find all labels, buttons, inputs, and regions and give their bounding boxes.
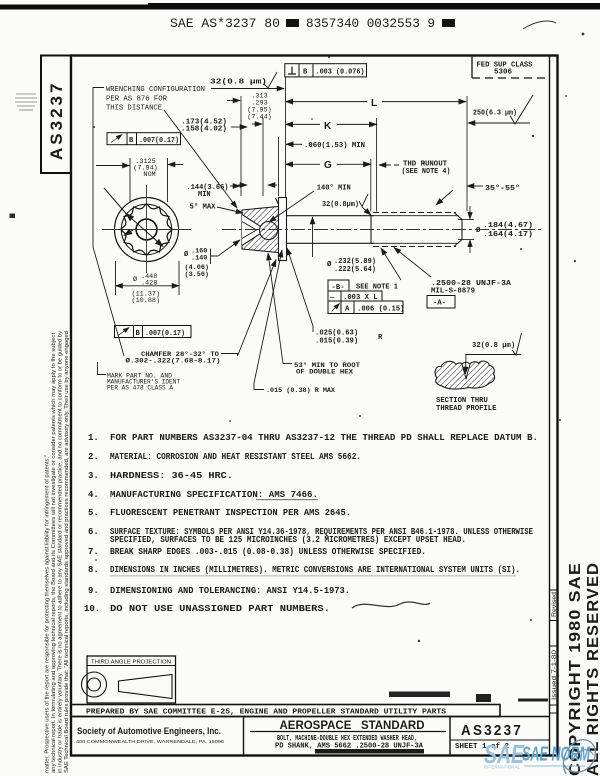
- svg-text:PER AS 478 CLASS A: PER AS 478 CLASS A: [107, 385, 173, 392]
- svg-text:.428: .428: [141, 280, 157, 288]
- svg-text:OF DOUBLE HEX: OF DOUBLE HEX: [296, 369, 354, 377]
- svg-text:SAE AS*3237 80: SAE AS*3237 80: [170, 16, 280, 31]
- svg-text:8.: 8.: [88, 565, 99, 575]
- svg-text:.060(1.53) MIN: .060(1.53) MIN: [304, 142, 365, 150]
- svg-text:(3.56): (3.56): [185, 271, 209, 279]
- svg-text:SEE NOTE 1: SEE NOTE 1: [356, 284, 399, 292]
- svg-text:.232(5.89): .232(5.89): [334, 258, 376, 266]
- svg-text:.015(0.39): .015(0.39): [315, 338, 358, 346]
- svg-text:.007(0.17): .007(0.17): [145, 330, 185, 338]
- svg-text:Ø: Ø: [476, 226, 481, 235]
- svg-text:BREAK SHARP EDGES .003-.015 (0: BREAK SHARP EDGES .003-.015 (0.08-0.38) …: [110, 547, 426, 557]
- svg-text:(SEE NOTE 4): (SEE NOTE 4): [402, 168, 451, 176]
- svg-text:.015 (0.38) R MAX: .015 (0.38) R MAX: [266, 387, 336, 395]
- svg-text:Ø: Ø: [327, 260, 332, 269]
- svg-text:2.: 2.: [88, 452, 99, 462]
- svg-text:HARDNESS: 36-45 HRC.: HARDNESS: 36-45 HRC.: [110, 471, 233, 481]
- svg-text:SPECIFIED, SURFACES TO BE 125: SPECIFIED, SURFACES TO BE 125 MICROINCHE…: [110, 535, 466, 545]
- svg-text:—: —: [329, 294, 335, 302]
- svg-text:(10.88): (10.88): [132, 297, 161, 305]
- svg-text:(7.44): (7.44): [247, 114, 271, 122]
- svg-text:Ø.302-.322(7.68-8.17): Ø.302-.322(7.68-8.17): [126, 357, 221, 366]
- svg-text:32(0.8 µm): 32(0.8 µm): [472, 342, 515, 350]
- svg-text:5.: 5.: [88, 508, 99, 518]
- svg-text:.003 (0.076): .003 (0.076): [316, 69, 365, 77]
- svg-text:9.: 9.: [88, 586, 99, 596]
- svg-text:.158(4.02): .158(4.02): [181, 126, 227, 134]
- svg-text:-A-: -A-: [433, 300, 446, 308]
- svg-text:SAE Technical Board rules prov: SAE Technical Board rules provide that: …: [64, 331, 70, 773]
- svg-text:THIS DISTANCE: THIS DISTANCE: [106, 105, 162, 113]
- svg-text:B: B: [136, 330, 141, 338]
- svg-text:MATERIAL: CORROSION AND HEAT: MATERIAL: CORROSION AND HEAT RESISTANT S…: [110, 452, 361, 462]
- svg-text:.164(4.17): .164(4.17): [483, 231, 533, 239]
- svg-text:MIL-S-8879: MIL-S-8879: [431, 288, 475, 296]
- svg-text:G: G: [324, 160, 332, 171]
- svg-text:6.: 6.: [88, 527, 99, 537]
- svg-text:DO NOT USE UNASSIGNED PART NUM: DO NOT USE UNASSIGNED PART NUMBERS.: [110, 604, 330, 614]
- svg-text:NOM: NOM: [143, 171, 155, 179]
- svg-text:MIN: MIN: [198, 191, 211, 199]
- svg-text:8357340 0032553 9: 8357340 0032553 9: [306, 16, 435, 31]
- svg-text:35°-55°: 35°-55°: [485, 184, 520, 193]
- svg-text:5306: 5306: [494, 69, 513, 77]
- svg-text:5° MAX: 5° MAX: [190, 203, 217, 212]
- svg-text:.003 X L: .003 X L: [343, 294, 378, 302]
- svg-text:matter. Prospective users of t: matter. Prospective users of the report …: [45, 455, 51, 773]
- svg-text:3.: 3.: [88, 471, 99, 481]
- svg-text:WRENCHING CONFIGURATION: WRENCHING CONFIGURATION: [106, 86, 205, 94]
- svg-text:L: L: [371, 98, 377, 109]
- svg-text:-B-: -B-: [332, 284, 345, 292]
- svg-text:PER AS 876 FOR: PER AS 876 FOR: [106, 96, 168, 104]
- svg-text:.007(0.17): .007(0.17): [139, 137, 179, 145]
- svg-text:SECTION THRU: SECTION THRU: [436, 397, 488, 405]
- svg-text:AS3237: AS3237: [47, 81, 66, 160]
- svg-text:AS3237: AS3237: [461, 722, 523, 739]
- svg-text:A: A: [345, 306, 350, 314]
- svg-text:THIRD ANGLE PROJECTION: THIRD ANGLE PROJECTION: [91, 660, 171, 666]
- svg-text:AEROSPACE STANDARD: AEROSPACE STANDARD: [280, 720, 425, 732]
- svg-text:.222(5.64): .222(5.64): [334, 266, 376, 274]
- svg-text:140° MIN: 140° MIN: [317, 184, 351, 193]
- svg-text:INTERNATIONAL: INTERNATIONAL: [484, 765, 521, 770]
- svg-text:B: B: [129, 137, 134, 145]
- svg-text:400 COMMONWEALTH DRIVE, WARREN: 400 COMMONWEALTH DRIVE, WARRENDALE, PA. …: [76, 739, 225, 744]
- svg-text:.025(0.63): .025(0.63): [315, 330, 358, 338]
- svg-text:DIMENSIONS IN INCHES (MILLIMET: DIMENSIONS IN INCHES (MILLIMETRES). METR…: [110, 565, 520, 575]
- svg-text:FLUORESCENT PENETRANT INSPECTI: FLUORESCENT PENETRANT INSPECTION PER AMS…: [110, 508, 351, 518]
- svg-text:Society of Automotive Engineer: Society of Automotive Engineers, Inc.: [77, 726, 221, 736]
- svg-text:DIMENSIONING AND TOLERANCING:: DIMENSIONING AND TOLERANCING: ANSI Y14.5…: [110, 586, 350, 596]
- svg-text:Ø: Ø: [133, 275, 137, 284]
- svg-text:Issued 7-1-80: Issued 7-1-80: [551, 650, 558, 700]
- svg-text:.184(4.67): .184(4.67): [483, 222, 533, 230]
- svg-text:Revised: Revised: [551, 592, 558, 617]
- svg-text:32(0.8µm): 32(0.8µm): [322, 201, 359, 209]
- svg-text:10.: 10.: [84, 604, 100, 614]
- svg-text:.140: .140: [191, 255, 207, 263]
- svg-text:any technical report. In formu: any technical report. In formulating and…: [51, 332, 57, 773]
- svg-text:MANUFACTURING SPECIFICATION:: MANUFACTURING SPECIFICATION: AMS 7466.: [110, 490, 318, 500]
- svg-text:4.: 4.: [88, 490, 99, 500]
- svg-text:1.: 1.: [88, 433, 99, 443]
- svg-text:THREAD PROFILE: THREAD PROFILE: [436, 405, 497, 413]
- svg-text:FOR PART NUMBERS AS3237-04 THR: FOR PART NUMBERS AS3237-04 THRU AS3237-1…: [110, 433, 538, 443]
- svg-text:K: K: [324, 121, 332, 132]
- svg-text:R: R: [378, 334, 383, 342]
- svg-text:in industry or trade is entire: in industry or trade is entirely volunta…: [58, 331, 64, 773]
- svg-text:B: B: [303, 69, 308, 77]
- svg-text:SAE NORM: SAE NORM: [522, 744, 591, 766]
- svg-text:PREPARED BY SAE COMMITTEE E-25: PREPARED BY SAE COMMITTEE E-25, ENGINE A…: [86, 709, 447, 717]
- svg-text:32(0.8 µm): 32(0.8 µm): [210, 79, 267, 87]
- svg-text:.006 (0.15): .006 (0.15): [357, 306, 404, 314]
- svg-text:7.: 7.: [88, 547, 99, 557]
